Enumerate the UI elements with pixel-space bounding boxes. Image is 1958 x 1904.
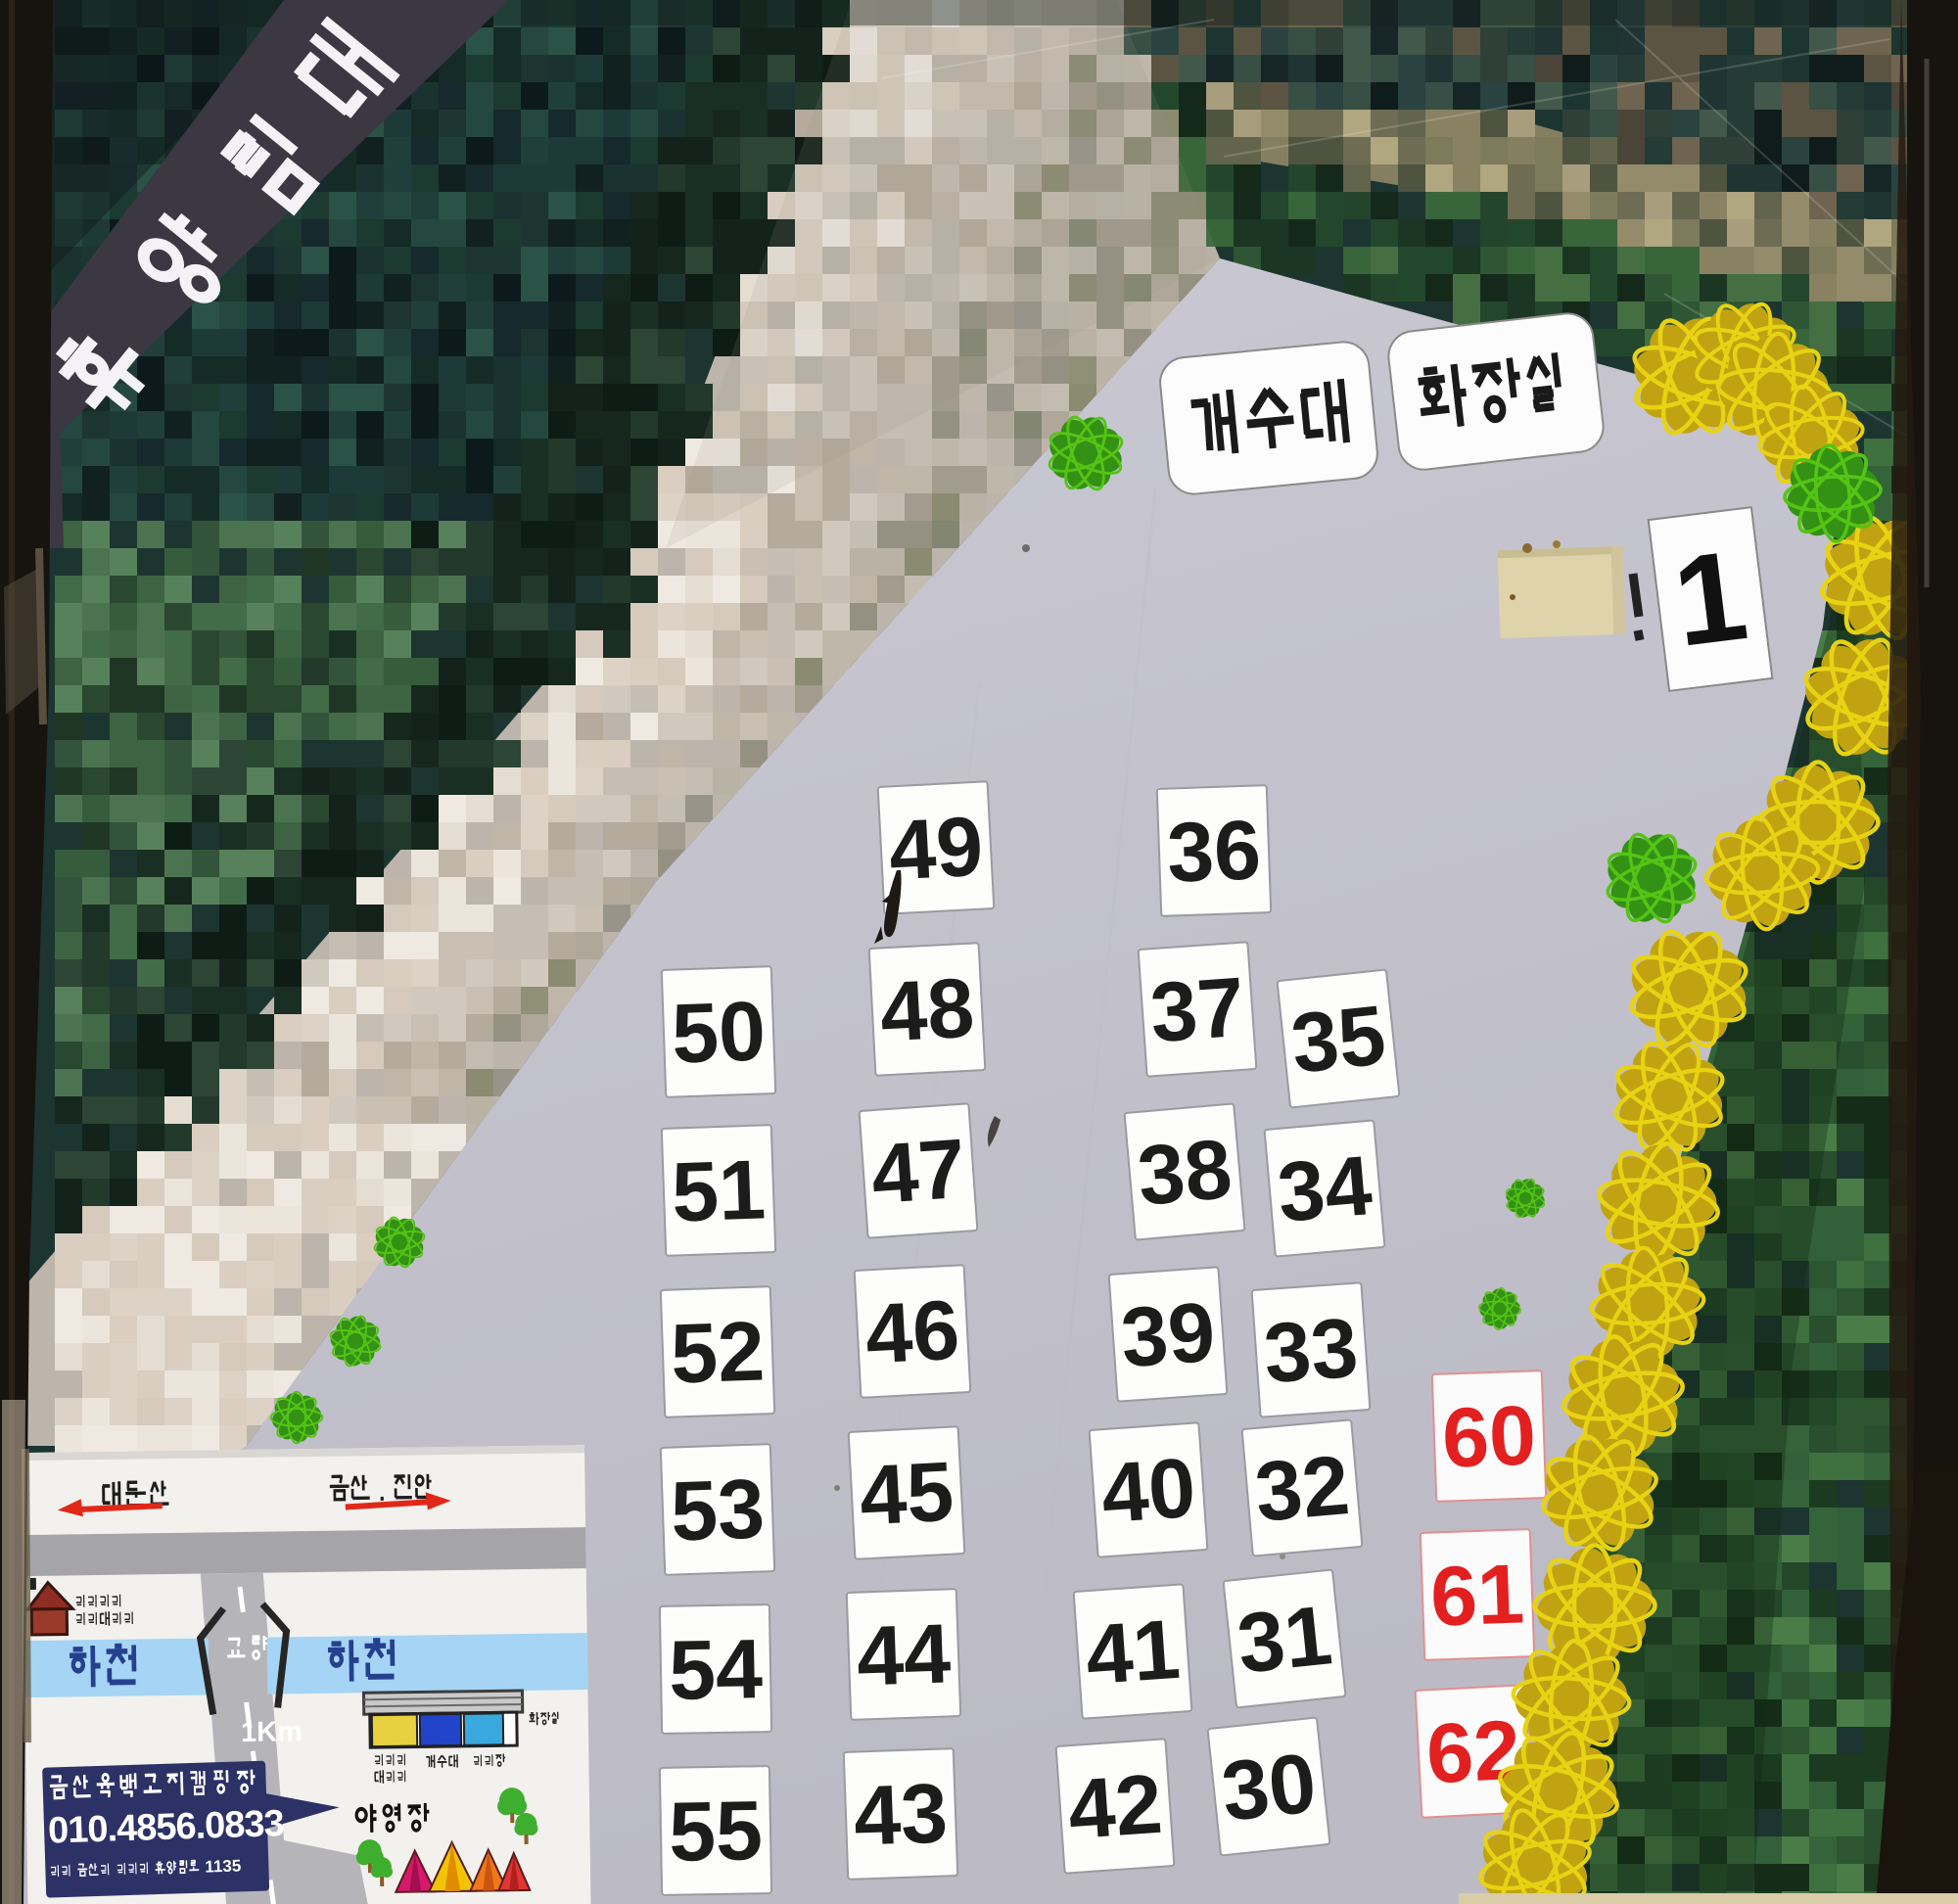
svg-text:60: 60 [1441,1388,1538,1485]
svg-text:39: 39 [1118,1285,1218,1385]
svg-text:61: 61 [1429,1547,1526,1644]
svg-text:1135: 1135 [205,1856,241,1876]
svg-text:42: 42 [1065,1757,1165,1857]
svg-text:37: 37 [1147,960,1247,1060]
svg-text:53: 53 [670,1462,767,1558]
svg-text:44: 44 [856,1606,953,1703]
svg-text:43: 43 [853,1766,950,1863]
svg-text:36: 36 [1166,803,1263,900]
svg-text:34: 34 [1274,1138,1375,1240]
svg-text:50: 50 [671,984,768,1081]
svg-text:49: 49 [887,800,986,899]
svg-text:47: 47 [868,1122,968,1222]
svg-text:33: 33 [1261,1301,1361,1401]
svg-text:1Km: 1Km [241,1716,303,1748]
svg-text:55: 55 [668,1784,763,1880]
svg-text:46: 46 [863,1283,962,1382]
svg-text:38: 38 [1134,1122,1235,1224]
svg-text:31: 31 [1234,1588,1336,1691]
svg-text:54: 54 [668,1622,763,1718]
svg-text:48: 48 [878,961,977,1060]
svg-text:45: 45 [858,1445,956,1544]
svg-text:41: 41 [1083,1602,1183,1702]
svg-text:32: 32 [1251,1438,1353,1540]
svg-text:35: 35 [1287,988,1390,1091]
svg-text:52: 52 [670,1304,767,1401]
svg-text:30: 30 [1218,1736,1321,1838]
svg-text:010.4856.0833: 010.4856.0833 [47,1803,284,1852]
svg-text:40: 40 [1098,1441,1198,1541]
svg-text:51: 51 [671,1142,768,1239]
